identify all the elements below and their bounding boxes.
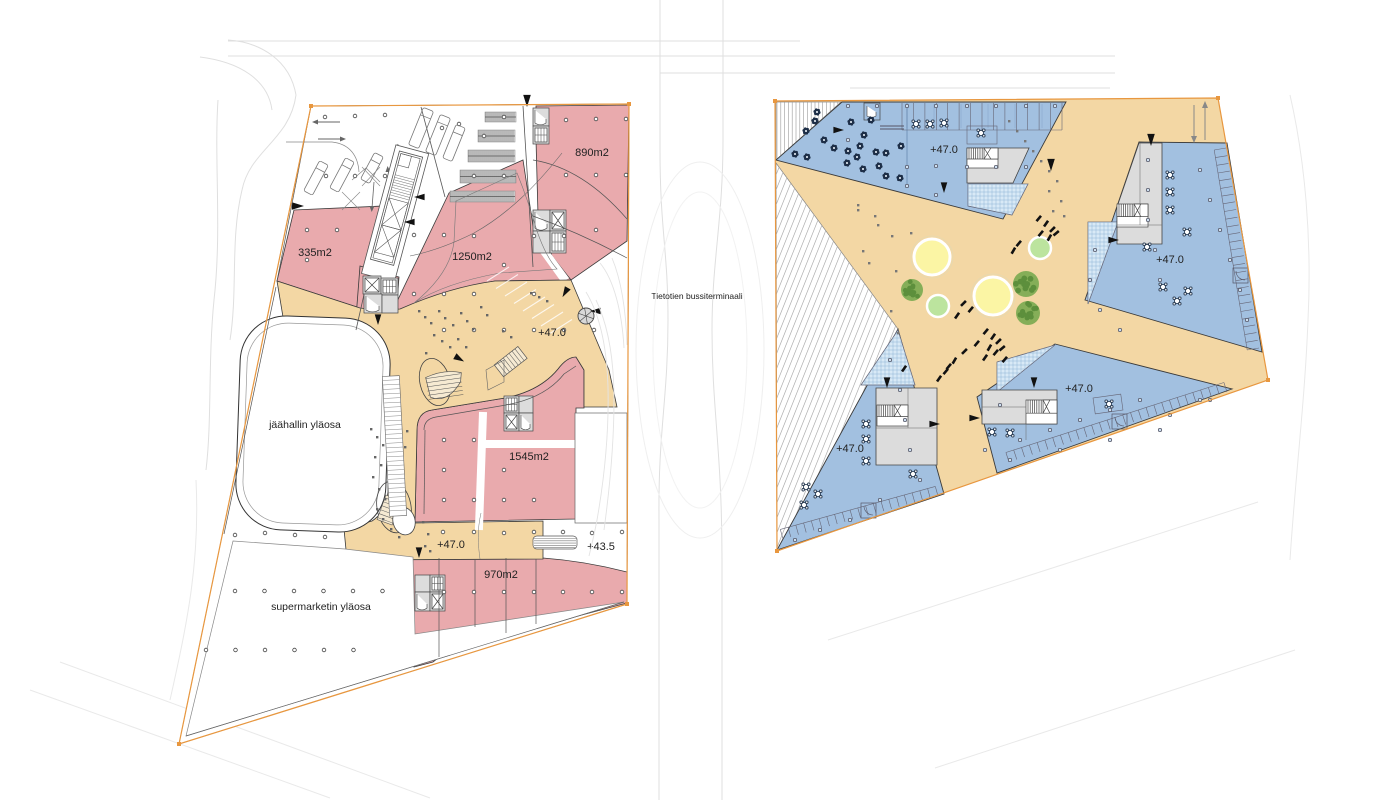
svg-text:335m2: 335m2: [298, 247, 332, 259]
svg-text:1250m2: 1250m2: [452, 251, 492, 263]
svg-text:supermarketin yläosa: supermarketin yläosa: [271, 601, 371, 613]
svg-text:+47.0: +47.0: [538, 327, 566, 339]
svg-text:+47.0: +47.0: [1065, 383, 1093, 395]
svg-text:Tietotien bussiterminaali: Tietotien bussiterminaali: [651, 291, 742, 301]
svg-text:+47.0: +47.0: [437, 539, 465, 551]
svg-text:890m2: 890m2: [575, 147, 609, 159]
svg-text:970m2: 970m2: [484, 569, 518, 581]
svg-text:+47.0: +47.0: [1156, 254, 1184, 266]
svg-text:1545m2: 1545m2: [509, 451, 549, 463]
svg-text:+47.0: +47.0: [930, 144, 958, 156]
svg-text:+47.0: +47.0: [836, 443, 864, 455]
svg-text:jäähallin yläosa: jäähallin yläosa: [268, 419, 341, 431]
